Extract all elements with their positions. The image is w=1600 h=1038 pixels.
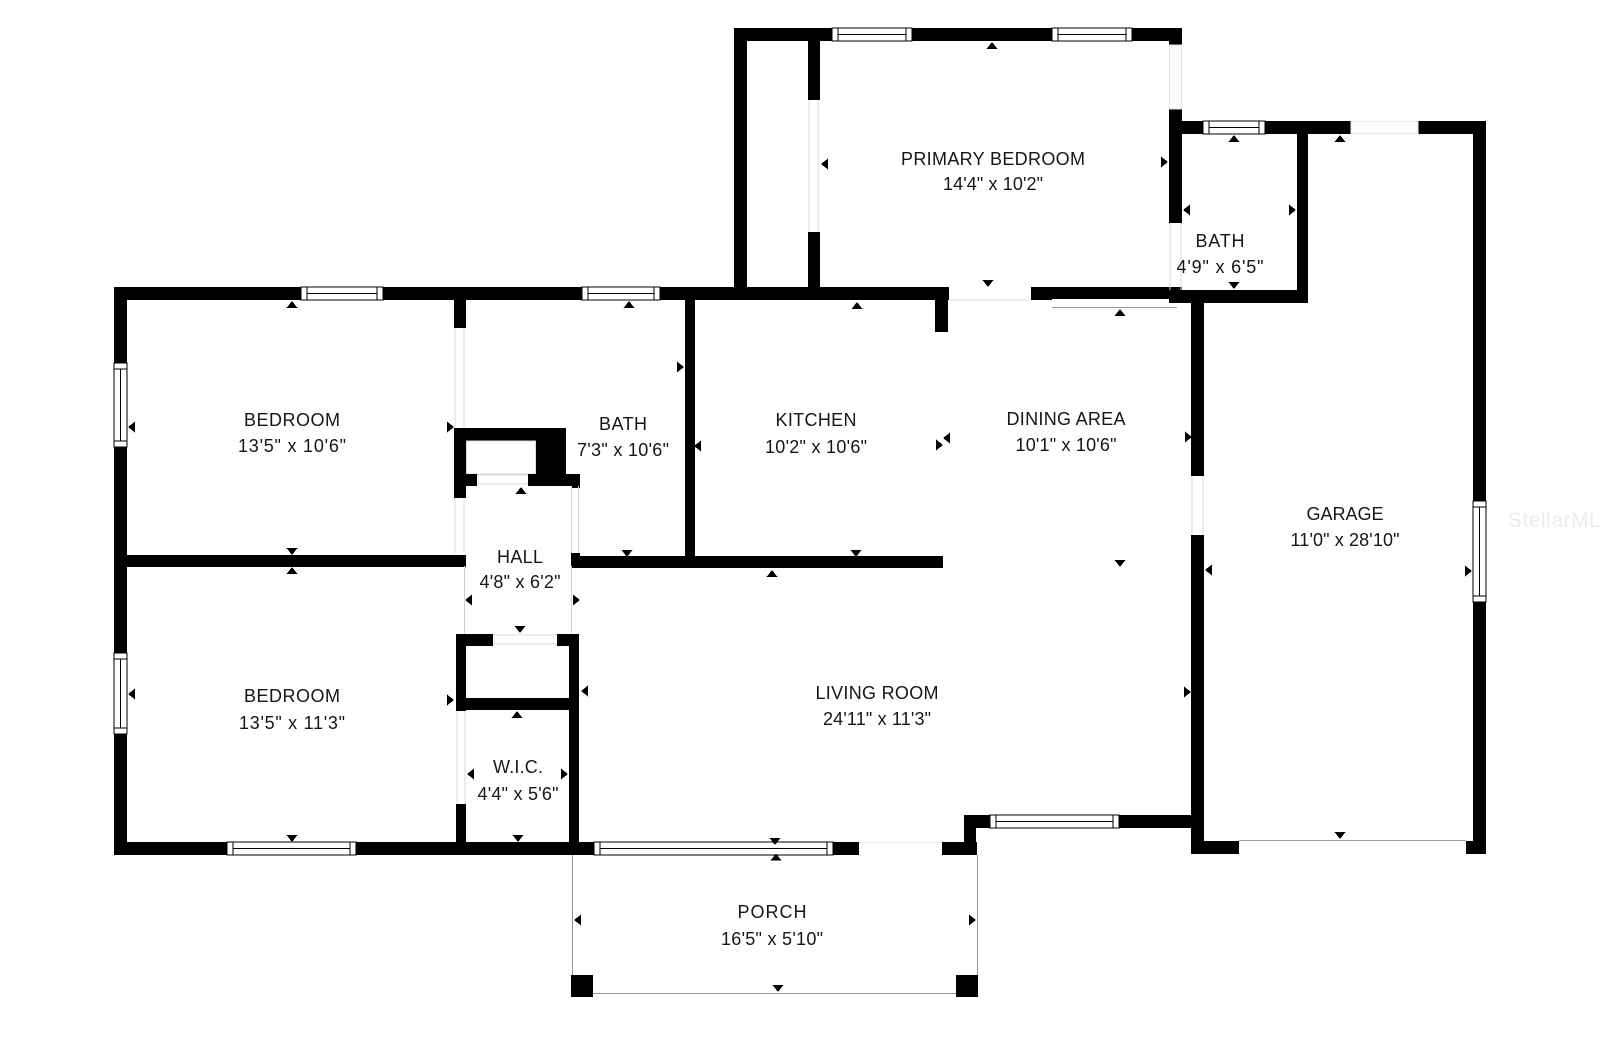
svg-text:10'1" x 10'6": 10'1" x 10'6" — [1016, 435, 1117, 455]
svg-text:HALL: HALL — [497, 547, 543, 567]
svg-text:4'4" x 5'6": 4'4" x 5'6" — [478, 784, 559, 804]
svg-text:BEDROOM: BEDROOM — [244, 686, 340, 706]
svg-text:BEDROOM: BEDROOM — [244, 410, 340, 430]
svg-text:7'3" x 10'6": 7'3" x 10'6" — [577, 440, 669, 460]
svg-text:4'8" x 6'2": 4'8" x 6'2" — [480, 572, 561, 592]
svg-text:StellarMLS: StellarMLS — [1508, 509, 1600, 532]
svg-text:13'5" x 11'3": 13'5" x 11'3" — [239, 713, 345, 733]
svg-text:BATH: BATH — [1196, 231, 1245, 251]
svg-text:KITCHEN: KITCHEN — [776, 410, 857, 430]
svg-text:14'4" x 10'2": 14'4" x 10'2" — [943, 174, 1043, 194]
svg-text:24'11" x 11'3": 24'11" x 11'3" — [823, 709, 931, 729]
svg-text:DINING AREA: DINING AREA — [1007, 409, 1126, 429]
svg-text:BATH: BATH — [599, 414, 647, 434]
svg-text:PRIMARY BEDROOM: PRIMARY BEDROOM — [901, 149, 1085, 169]
svg-text:4'9" x 6'5": 4'9" x 6'5" — [1177, 257, 1264, 277]
svg-text:11'0" x 28'10": 11'0" x 28'10" — [1291, 530, 1400, 550]
svg-text:GARAGE: GARAGE — [1307, 504, 1384, 524]
svg-text:16'5" x 5'10": 16'5" x 5'10" — [721, 929, 823, 949]
svg-text:PORCH: PORCH — [738, 902, 807, 922]
svg-text:10'2" x 10'6": 10'2" x 10'6" — [765, 437, 867, 457]
svg-text:LIVING ROOM: LIVING ROOM — [816, 683, 939, 703]
svg-text:W.I.C.: W.I.C. — [493, 757, 543, 777]
svg-text:13'5" x 10'6": 13'5" x 10'6" — [238, 436, 346, 456]
